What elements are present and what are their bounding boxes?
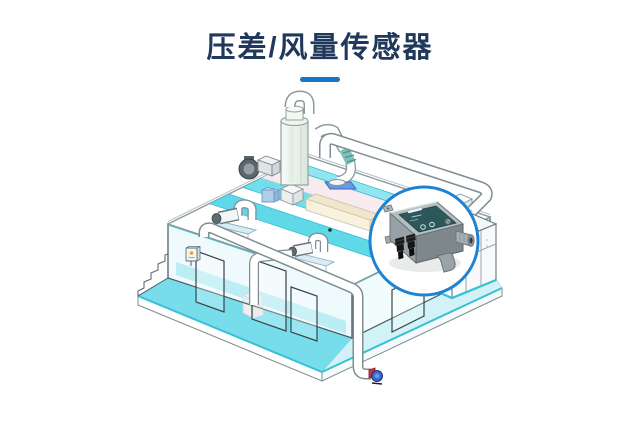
indicator-light-icon	[190, 251, 194, 255]
screw-icon	[445, 219, 450, 224]
page-title: 压差/风量传感器	[0, 0, 640, 65]
drain-pump	[369, 368, 383, 384]
floor-drain-dot	[328, 228, 332, 232]
page: 压差/风量传感器	[0, 0, 640, 425]
blower-control-box	[262, 188, 279, 203]
pump-flange-icon	[212, 214, 221, 224]
page-header: 压差/风量传感器	[0, 0, 640, 82]
title-divider	[300, 77, 340, 82]
sensor-callout	[370, 187, 478, 295]
